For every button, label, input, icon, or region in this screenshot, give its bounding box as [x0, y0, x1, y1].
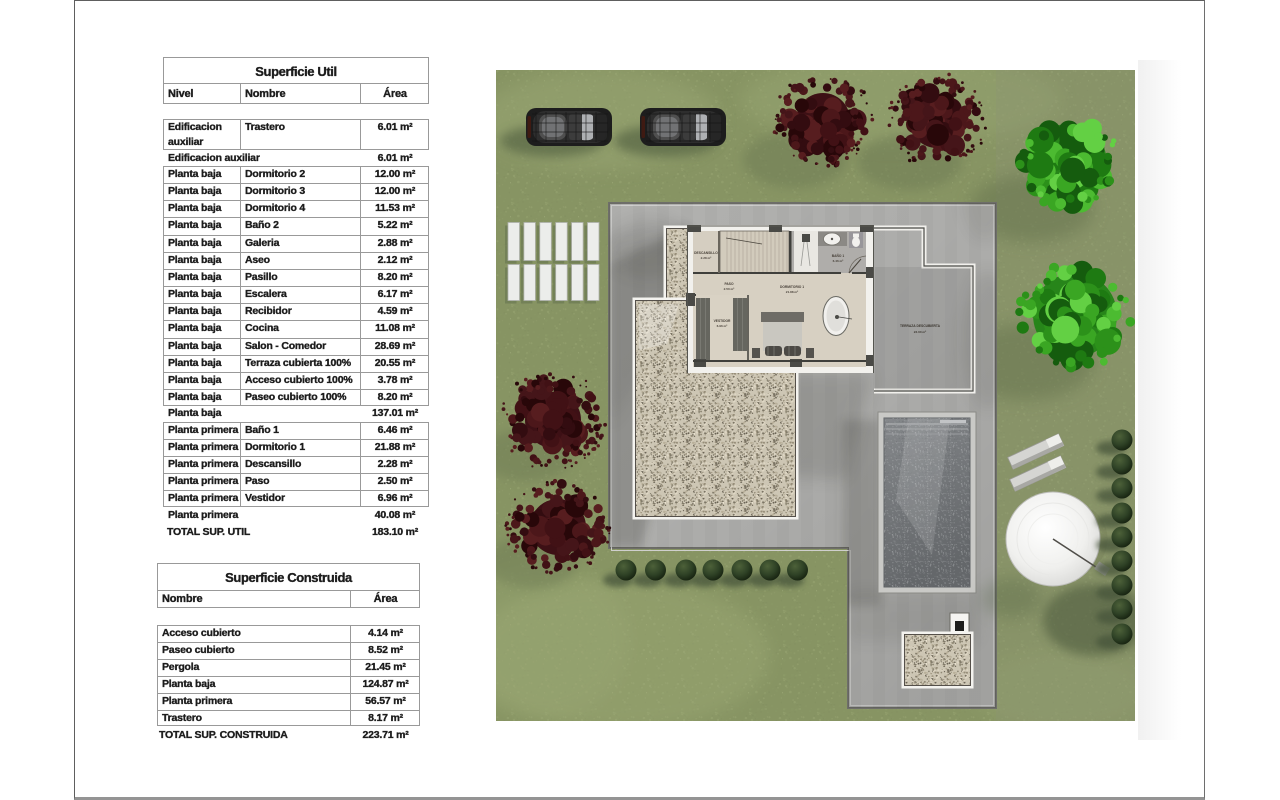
svg-text:22.00 m²: 22.00 m²: [914, 330, 926, 334]
svg-text:2.50 m²: 2.50 m²: [724, 287, 735, 291]
svg-text:6.96 m²: 6.96 m²: [717, 324, 728, 328]
svg-text:6.46 m²: 6.46 m²: [833, 259, 844, 263]
svg-text:TERRAZA DESCUBIERTA: TERRAZA DESCUBIERTA: [900, 324, 941, 328]
svg-text:DORMITORIO 1: DORMITORIO 1: [780, 285, 804, 289]
svg-text:BAÑO 1: BAÑO 1: [832, 253, 845, 258]
svg-text:VESTIDOR: VESTIDOR: [714, 319, 731, 323]
svg-text:PASO: PASO: [724, 282, 734, 286]
svg-text:21.88 m²: 21.88 m²: [786, 290, 798, 294]
svg-text:2.28 m²: 2.28 m²: [701, 256, 712, 260]
svg-text:DESCANSILLO: DESCANSILLO: [694, 251, 718, 255]
